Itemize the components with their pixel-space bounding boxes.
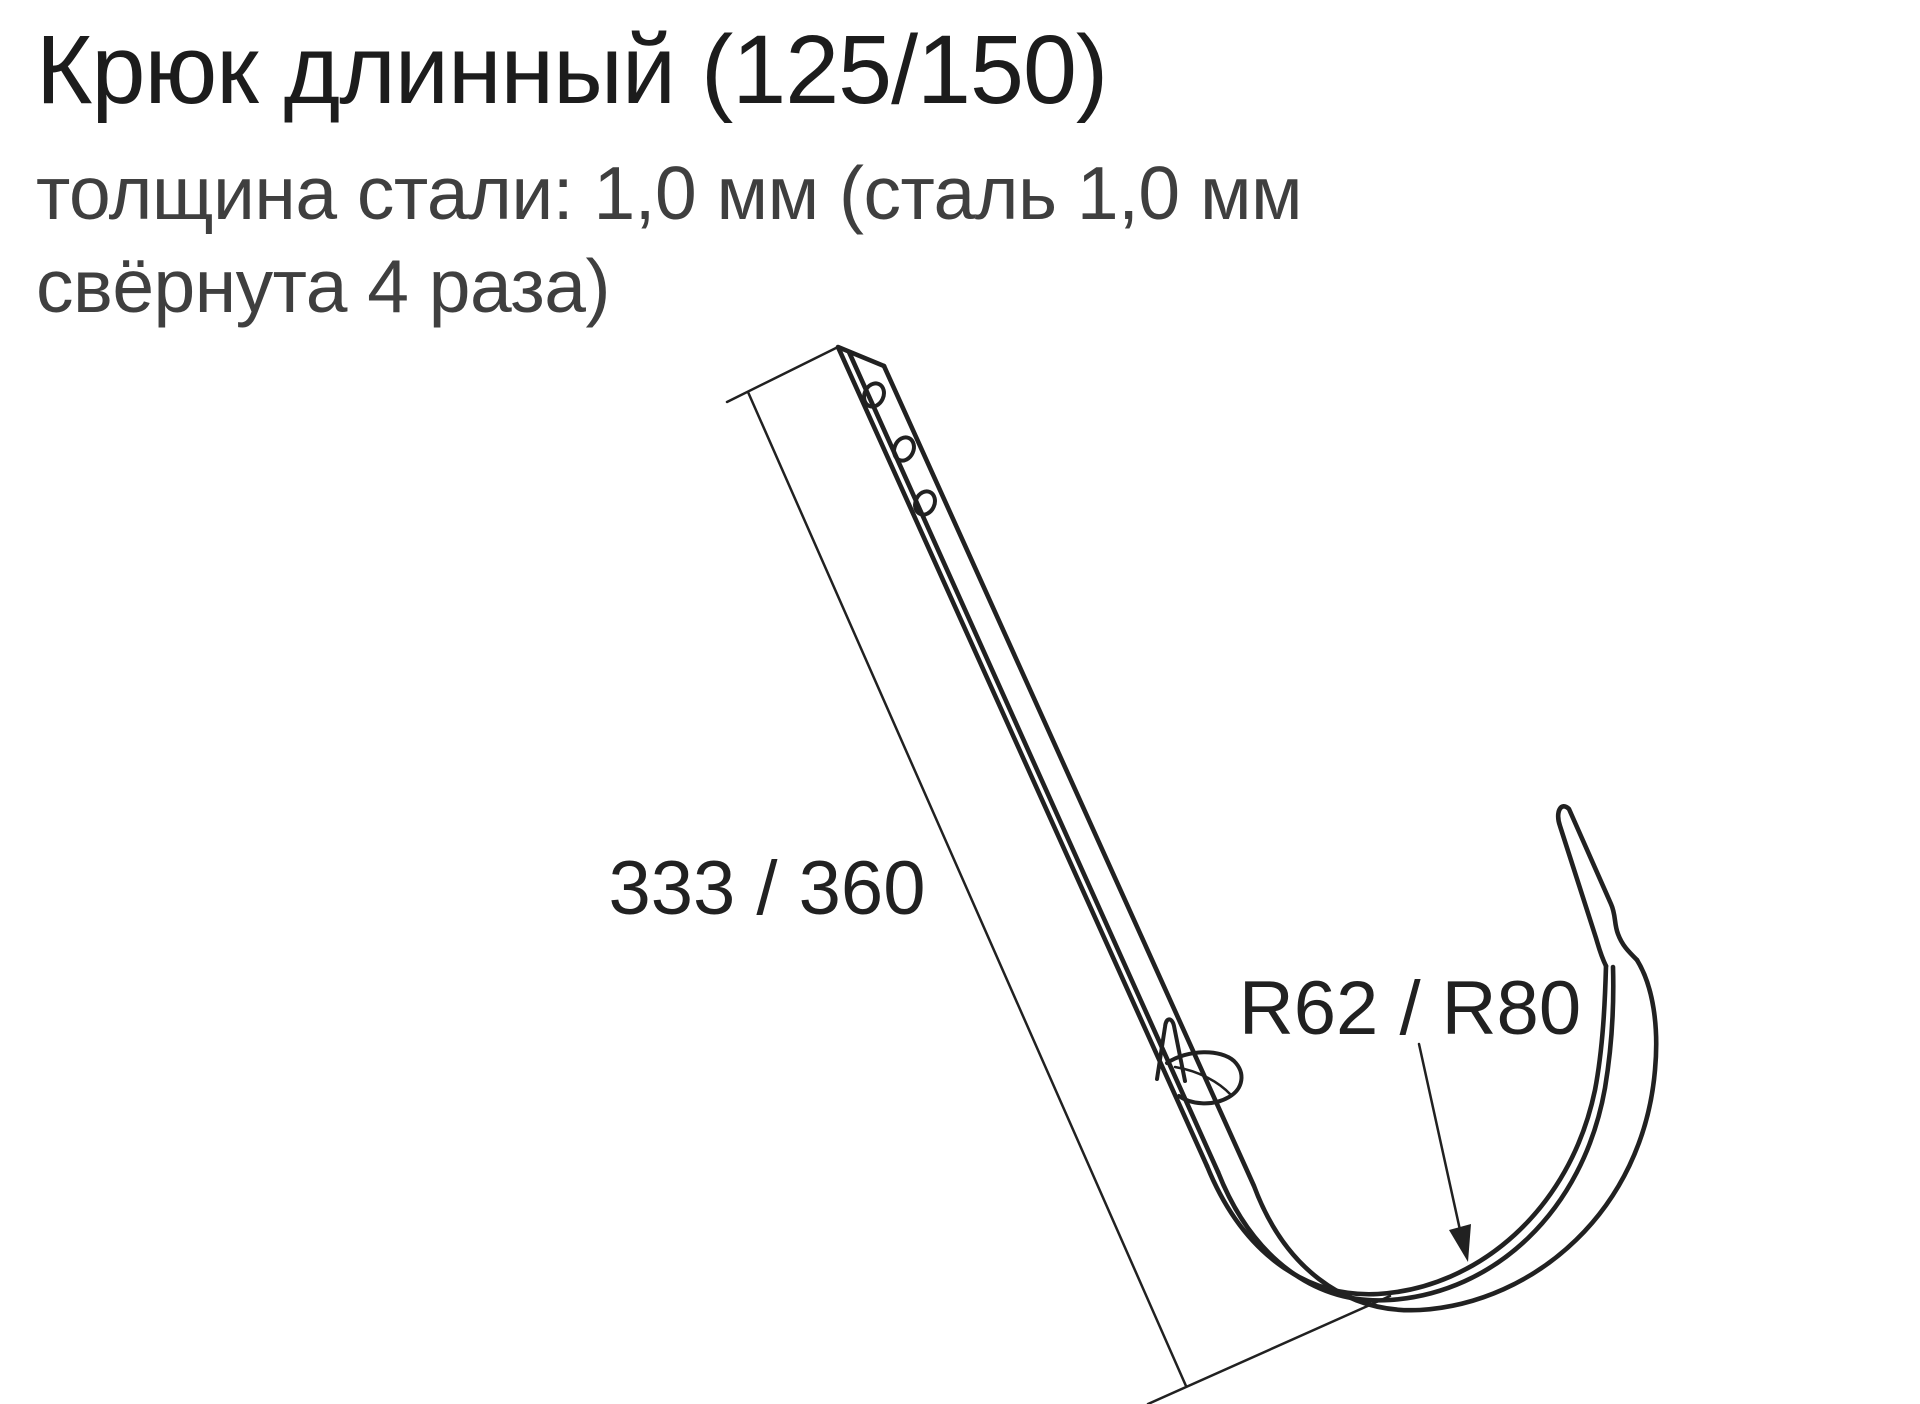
- length-extension-line-top: [727, 347, 838, 402]
- length-dimension-label: 333 / 360: [609, 846, 926, 931]
- screw-hole-center: [922, 499, 928, 507]
- strap-top-and-left-edge: [838, 347, 1207, 1166]
- screw-hole-outer: [890, 434, 917, 464]
- radius-dimension-label: R62 / R80: [1239, 966, 1581, 1051]
- hook-front-lip-beak: [1558, 806, 1637, 966]
- radius-arrow-line: [1419, 1044, 1460, 1230]
- gutter-hook-technical-drawing: 333 / 360 R62 / R80: [0, 0, 1920, 1404]
- strap-right-edge-and-outer-curve: [884, 366, 1656, 1310]
- screw-hole-outer: [911, 488, 938, 518]
- screw-hole-center: [901, 445, 907, 453]
- length-extension-line-bottom: [1148, 1296, 1390, 1404]
- radius-arrow-head: [1449, 1224, 1471, 1262]
- product-spec-page: Крюк длинный (125/150) толщина стали: 1,…: [0, 0, 1920, 1404]
